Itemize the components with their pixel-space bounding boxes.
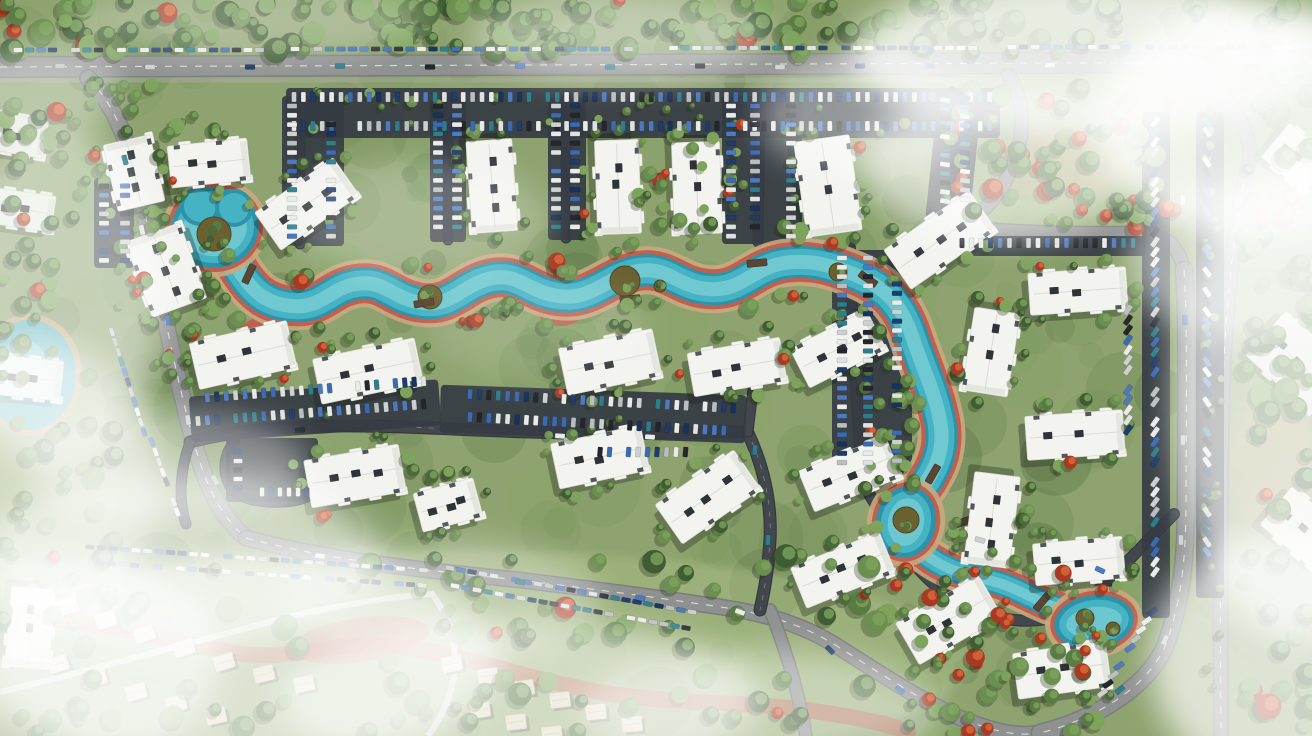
car xyxy=(611,92,616,102)
car xyxy=(287,113,297,118)
car xyxy=(664,447,670,457)
car xyxy=(750,215,760,220)
car xyxy=(750,122,760,127)
car xyxy=(608,396,613,406)
car xyxy=(599,396,604,406)
car xyxy=(470,92,475,102)
car xyxy=(486,390,491,400)
car xyxy=(367,92,372,102)
car xyxy=(863,377,873,382)
car xyxy=(683,447,689,457)
car xyxy=(423,121,428,131)
car xyxy=(463,47,472,52)
car xyxy=(552,416,557,426)
car xyxy=(750,104,760,109)
car xyxy=(721,402,726,412)
car xyxy=(837,423,847,428)
car xyxy=(608,419,613,429)
car xyxy=(730,403,735,413)
car xyxy=(395,121,400,131)
car xyxy=(892,282,902,287)
car xyxy=(308,407,314,417)
car xyxy=(592,92,597,102)
car xyxy=(533,392,538,402)
car xyxy=(837,265,847,270)
car xyxy=(551,187,561,192)
car xyxy=(433,104,443,109)
car xyxy=(750,159,760,164)
car xyxy=(726,159,736,164)
car xyxy=(551,197,561,202)
car xyxy=(750,132,760,137)
car xyxy=(326,132,336,137)
car xyxy=(786,169,796,174)
car xyxy=(979,238,984,248)
car xyxy=(326,150,336,155)
car xyxy=(411,400,417,410)
car xyxy=(542,416,547,426)
car xyxy=(570,141,580,146)
car xyxy=(724,92,729,102)
car xyxy=(570,187,580,192)
car xyxy=(837,339,847,344)
car xyxy=(863,330,873,335)
fog-patch xyxy=(30,410,310,530)
car xyxy=(786,206,796,211)
car xyxy=(750,178,760,183)
car xyxy=(1102,238,1107,248)
car xyxy=(1112,238,1117,248)
car xyxy=(674,423,679,433)
car xyxy=(668,121,673,131)
car xyxy=(561,394,566,404)
car xyxy=(627,420,632,430)
car xyxy=(570,178,580,183)
car xyxy=(245,65,255,70)
car xyxy=(383,47,392,52)
car xyxy=(786,178,796,183)
car xyxy=(580,418,585,428)
car xyxy=(743,92,748,102)
car xyxy=(414,92,419,102)
car xyxy=(892,347,902,352)
car xyxy=(786,234,796,239)
car xyxy=(863,358,873,363)
car xyxy=(752,445,758,455)
car xyxy=(786,159,796,164)
car xyxy=(693,424,698,434)
car xyxy=(327,383,333,393)
car xyxy=(750,113,760,118)
car xyxy=(621,92,626,102)
car xyxy=(892,458,902,463)
car xyxy=(673,447,679,457)
car xyxy=(287,178,297,183)
car xyxy=(784,46,793,51)
car xyxy=(686,121,691,131)
car xyxy=(842,46,851,51)
car xyxy=(892,365,902,370)
car xyxy=(320,92,325,102)
car xyxy=(726,150,736,155)
car xyxy=(489,92,494,102)
car xyxy=(837,377,847,382)
car xyxy=(570,225,580,230)
car xyxy=(837,414,847,419)
car xyxy=(287,159,297,164)
car xyxy=(863,302,873,307)
car xyxy=(402,377,408,387)
car xyxy=(310,92,315,102)
car xyxy=(433,113,443,118)
car xyxy=(570,150,580,155)
car xyxy=(750,169,760,174)
car xyxy=(863,256,873,261)
car xyxy=(796,46,805,51)
car xyxy=(252,389,258,399)
car xyxy=(892,310,902,315)
car xyxy=(367,121,372,131)
car xyxy=(429,47,438,52)
car xyxy=(683,423,688,433)
car xyxy=(1179,535,1184,545)
car xyxy=(329,92,334,102)
car xyxy=(287,141,297,146)
car xyxy=(602,121,607,131)
car xyxy=(863,339,873,344)
car xyxy=(599,419,604,429)
car xyxy=(242,389,248,399)
car xyxy=(677,121,682,131)
car xyxy=(655,399,660,409)
car xyxy=(355,404,361,414)
car xyxy=(646,421,651,431)
car xyxy=(726,169,736,174)
car xyxy=(564,92,569,102)
car xyxy=(339,92,344,102)
car xyxy=(837,432,847,437)
car xyxy=(514,391,519,401)
car xyxy=(630,121,635,131)
car xyxy=(261,388,267,398)
car xyxy=(726,141,736,146)
car xyxy=(386,121,391,131)
car xyxy=(336,405,342,415)
car xyxy=(621,121,626,131)
car xyxy=(837,451,847,456)
car xyxy=(570,104,580,109)
car xyxy=(404,92,409,102)
car xyxy=(863,432,873,437)
car xyxy=(583,121,588,131)
car xyxy=(750,187,760,192)
car xyxy=(750,225,760,230)
car xyxy=(270,410,276,420)
car xyxy=(295,427,305,433)
car xyxy=(376,121,381,131)
car xyxy=(892,393,902,398)
car xyxy=(649,121,654,131)
car xyxy=(470,121,475,131)
car xyxy=(837,404,847,409)
car xyxy=(863,414,873,419)
car xyxy=(433,122,443,127)
car xyxy=(393,401,399,411)
fog-patch xyxy=(290,160,550,280)
car xyxy=(1121,238,1126,248)
car xyxy=(570,159,580,164)
car xyxy=(892,319,902,324)
car xyxy=(571,394,576,404)
car xyxy=(364,380,370,390)
car xyxy=(94,48,103,53)
car xyxy=(542,393,547,403)
car xyxy=(551,225,561,230)
car xyxy=(863,423,873,428)
car xyxy=(233,390,239,400)
car xyxy=(452,150,462,155)
car xyxy=(261,411,267,421)
car xyxy=(589,395,594,405)
car xyxy=(618,397,623,407)
car xyxy=(750,197,760,202)
car xyxy=(892,328,902,333)
car xyxy=(726,187,736,192)
car xyxy=(433,132,443,137)
car xyxy=(395,92,400,102)
car xyxy=(570,122,580,127)
car xyxy=(683,400,688,410)
car xyxy=(712,425,717,435)
car xyxy=(527,92,532,102)
car xyxy=(442,92,447,102)
car xyxy=(517,121,522,131)
car xyxy=(636,421,641,431)
car xyxy=(524,415,529,425)
car xyxy=(702,424,707,434)
car xyxy=(686,92,691,102)
car xyxy=(421,399,427,409)
car xyxy=(715,92,720,102)
lagoon-bridge xyxy=(747,259,768,268)
car xyxy=(668,92,673,102)
car xyxy=(589,418,594,428)
car xyxy=(551,113,561,118)
car xyxy=(357,121,362,131)
aerial-masterplan-render xyxy=(0,0,1312,736)
car xyxy=(505,391,510,401)
car xyxy=(837,358,847,363)
car xyxy=(223,391,229,401)
car xyxy=(837,256,847,261)
car xyxy=(969,238,974,248)
car xyxy=(495,390,500,400)
car xyxy=(205,392,211,402)
car xyxy=(837,284,847,289)
car xyxy=(317,407,323,417)
car xyxy=(892,403,902,408)
car xyxy=(775,65,785,70)
car xyxy=(750,150,760,155)
car xyxy=(892,449,902,454)
car xyxy=(461,92,466,102)
car xyxy=(517,92,522,102)
car xyxy=(837,302,847,307)
car xyxy=(705,121,710,131)
car xyxy=(863,284,873,289)
car xyxy=(597,447,603,457)
car xyxy=(555,92,560,102)
car xyxy=(892,384,902,389)
car xyxy=(270,387,276,397)
car xyxy=(308,384,314,394)
car xyxy=(376,92,381,102)
car xyxy=(477,389,482,399)
car xyxy=(527,121,532,131)
car xyxy=(477,412,482,422)
car xyxy=(726,234,736,239)
apartment-building xyxy=(587,132,645,236)
car xyxy=(705,92,710,102)
car xyxy=(892,300,902,305)
car xyxy=(592,121,597,131)
car xyxy=(570,132,580,137)
car xyxy=(649,92,654,102)
car xyxy=(639,92,644,102)
car xyxy=(489,121,494,131)
car xyxy=(636,398,641,408)
car xyxy=(837,442,847,447)
car xyxy=(440,47,449,52)
car xyxy=(837,395,847,400)
car xyxy=(837,293,847,298)
car xyxy=(551,206,561,211)
car xyxy=(287,122,297,127)
car xyxy=(505,414,510,424)
car xyxy=(317,384,323,394)
car xyxy=(602,92,607,102)
car xyxy=(551,178,561,183)
car xyxy=(696,121,701,131)
car xyxy=(299,385,305,395)
car xyxy=(452,113,462,118)
car xyxy=(773,46,782,51)
car xyxy=(326,141,336,146)
fog-patch xyxy=(280,540,600,660)
car xyxy=(726,225,736,230)
car xyxy=(611,121,616,131)
car xyxy=(571,417,576,427)
car xyxy=(467,389,472,399)
car xyxy=(837,274,847,279)
car xyxy=(837,367,847,372)
car xyxy=(658,121,663,131)
car xyxy=(715,121,720,131)
car xyxy=(551,104,561,109)
car xyxy=(574,92,579,102)
car xyxy=(645,447,651,457)
car xyxy=(467,412,472,422)
car xyxy=(733,92,738,102)
car xyxy=(655,422,660,432)
masterplan-canvas xyxy=(0,0,1312,736)
car xyxy=(508,121,513,131)
car xyxy=(1074,238,1079,248)
car xyxy=(750,206,760,211)
car xyxy=(551,132,561,137)
car xyxy=(583,92,588,102)
car xyxy=(639,121,644,131)
car xyxy=(892,337,902,342)
car xyxy=(863,442,873,447)
car xyxy=(837,460,847,465)
car xyxy=(627,397,632,407)
car xyxy=(383,402,389,412)
car xyxy=(346,405,352,415)
car xyxy=(696,92,701,102)
car xyxy=(348,92,353,102)
car xyxy=(486,413,491,423)
car xyxy=(863,274,873,279)
car xyxy=(837,321,847,326)
car xyxy=(1064,238,1069,248)
car xyxy=(743,121,748,131)
car xyxy=(837,349,847,354)
car xyxy=(289,409,295,419)
car xyxy=(555,433,565,439)
car xyxy=(452,47,461,52)
car xyxy=(863,404,873,409)
car xyxy=(752,92,757,102)
car xyxy=(451,92,456,102)
car xyxy=(393,378,399,388)
car xyxy=(433,150,443,155)
car xyxy=(374,380,380,390)
car xyxy=(551,169,561,174)
car xyxy=(674,400,679,410)
car xyxy=(498,92,503,102)
car xyxy=(960,238,965,248)
car xyxy=(425,65,435,70)
car xyxy=(564,121,569,131)
car xyxy=(658,92,663,102)
fog-patch xyxy=(430,280,650,380)
car xyxy=(287,169,297,174)
car xyxy=(892,430,902,435)
car xyxy=(252,412,258,422)
car xyxy=(280,410,286,420)
car xyxy=(551,141,561,146)
car xyxy=(863,395,873,400)
car xyxy=(301,92,306,102)
car xyxy=(837,386,847,391)
car xyxy=(607,447,613,457)
car xyxy=(721,425,726,435)
car xyxy=(287,187,297,192)
car xyxy=(630,92,635,102)
car xyxy=(786,197,796,202)
car xyxy=(280,387,286,397)
car xyxy=(863,321,873,326)
car xyxy=(635,447,641,457)
car xyxy=(892,291,902,296)
car xyxy=(863,293,873,298)
car xyxy=(837,311,847,316)
car xyxy=(287,150,297,155)
car xyxy=(570,197,580,202)
car xyxy=(357,92,362,102)
car xyxy=(863,311,873,316)
